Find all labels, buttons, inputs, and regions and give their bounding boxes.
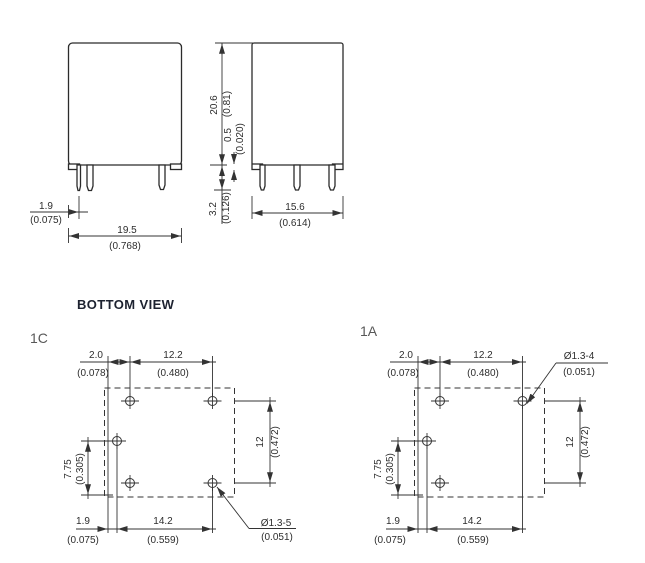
dim-1c-left-span-in: (0.305) bbox=[75, 453, 86, 485]
callout-1a-hole-dia-in: (0.051) bbox=[563, 367, 595, 378]
side-view: 20.6 (0.81) 0.5 (0.020) 3.2 (0.126) 15.6… bbox=[208, 43, 343, 229]
dim-1c-bottom-span-mm: 14.2 bbox=[153, 516, 173, 527]
relay-body-side bbox=[252, 43, 343, 165]
dim-1c-top-span-mm: 12.2 bbox=[163, 350, 183, 361]
dim-front-width-mm: 19.5 bbox=[117, 225, 137, 236]
relay-dimension-drawing: 1.9 (0.075) 19.5 (0.768) 20.6 (0.81 bbox=[0, 0, 645, 563]
bottom-view-1a: 1A 2.0 (0.078) 12.2 (0.480) 7.75 ( bbox=[360, 323, 608, 546]
dim-1a-bottom-offset-in: (0.075) bbox=[374, 535, 406, 546]
dim-side-pin-length-in: (0.126) bbox=[221, 192, 232, 224]
dim-1c-left-span-mm: 7.75 bbox=[63, 459, 74, 479]
dim-1c-top-span-in: (0.480) bbox=[157, 368, 189, 379]
dim-1c-edge-offset-in: (0.078) bbox=[77, 368, 109, 379]
front-view: 1.9 (0.075) 19.5 (0.768) bbox=[30, 43, 182, 252]
dim-1c-edge-offset-mm: 2.0 bbox=[89, 350, 103, 361]
callout-1a-hole-dia: Ø1.3-4 bbox=[564, 351, 595, 362]
pin bbox=[294, 165, 300, 190]
dim-1a-left-span-mm: 7.75 bbox=[373, 459, 384, 479]
callout-1c-hole-dia-in: (0.051) bbox=[261, 532, 293, 543]
dim-1a-left-span-in: (0.305) bbox=[385, 453, 396, 485]
dim-side-standoff-in: (0.020) bbox=[235, 123, 246, 155]
standoff-foot-right bbox=[171, 164, 182, 170]
pin bbox=[260, 165, 265, 190]
dim-1a-top-span-mm: 12.2 bbox=[473, 350, 493, 361]
dim-1a-bottom-offset-mm: 1.9 bbox=[386, 516, 400, 527]
pin-holes bbox=[418, 393, 532, 491]
dim-side-height-mm: 20.6 bbox=[209, 95, 220, 115]
pin-holes bbox=[108, 393, 222, 491]
drawing-canvas: 1.9 (0.075) 19.5 (0.768) 20.6 (0.81 bbox=[0, 0, 645, 563]
dim-1a-top-span-in: (0.480) bbox=[467, 368, 499, 379]
dim-side-pin-length-mm: 3.2 bbox=[208, 202, 219, 216]
hole-diameter-callout: Ø1.3-4 (0.051) bbox=[527, 351, 608, 404]
dim-1c-bottom-offset-mm: 1.9 bbox=[76, 516, 90, 527]
dim-1a-edge-offset-in: (0.078) bbox=[387, 368, 419, 379]
dim-1a-edge-offset-mm: 2.0 bbox=[399, 350, 413, 361]
pin bbox=[329, 165, 335, 190]
dim-side-depth-mm: 15.6 bbox=[285, 202, 305, 213]
section-title: BOTTOM VIEW bbox=[77, 297, 175, 312]
dim-1a-bottom-span-mm: 14.2 bbox=[462, 516, 482, 527]
dim-front-width-in: (0.768) bbox=[109, 241, 141, 252]
dim-1a-right-span-in: (0.472) bbox=[580, 426, 591, 458]
dim-side-standoff-mm: 0.5 bbox=[223, 128, 234, 142]
dim-1a-bottom-span-in: (0.559) bbox=[457, 535, 489, 546]
dim-side-depth-in: (0.614) bbox=[279, 218, 311, 229]
dim-1a-right-span-mm: 12 bbox=[565, 436, 576, 448]
dim-side-height-in: (0.81) bbox=[222, 91, 233, 117]
callout-1c-hole-dia: Ø1.3-5 bbox=[261, 518, 292, 529]
view-label-1a: 1A bbox=[360, 323, 378, 339]
dim-1c-right-span-mm: 12 bbox=[255, 436, 266, 448]
pin bbox=[159, 165, 165, 190]
dim-1c-bottom-offset-in: (0.075) bbox=[67, 535, 99, 546]
view-label-1c: 1C bbox=[30, 330, 48, 346]
front-view-dimensions: 1.9 (0.075) 19.5 (0.768) bbox=[30, 196, 182, 252]
hole-diameter-callout: Ø1.3-5 (0.051) bbox=[217, 487, 296, 543]
dim-1c-bottom-span-in: (0.559) bbox=[147, 535, 179, 546]
relay-body-front bbox=[69, 43, 182, 165]
pin bbox=[87, 165, 93, 191]
bottom-view-1c: 1C 2.0 (0.078) 12.2 (0.480) 7.7 bbox=[30, 330, 296, 546]
dim-front-pin-offset-in: (0.075) bbox=[30, 215, 62, 226]
pin bbox=[77, 165, 81, 191]
dim-1c-right-span-in: (0.472) bbox=[270, 426, 281, 458]
dim-front-pin-offset-mm: 1.9 bbox=[39, 201, 53, 212]
